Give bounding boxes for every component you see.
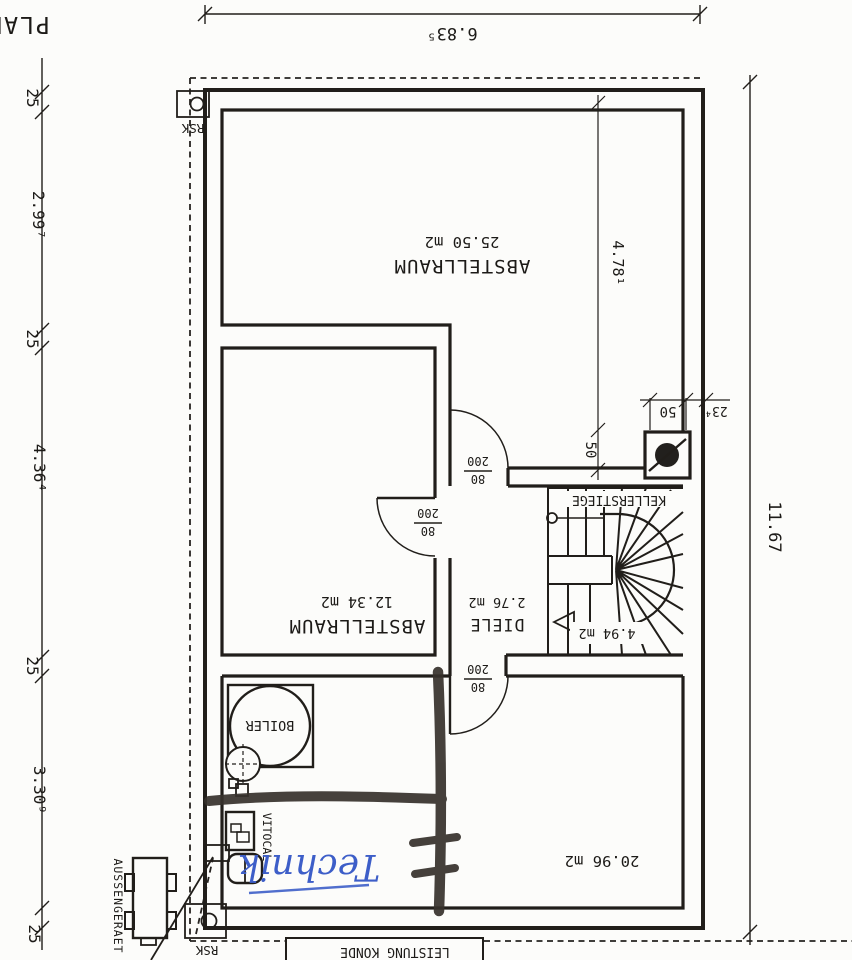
door-label-technik: 80 200 bbox=[464, 662, 492, 694]
outdoor-unit-label: AUSSENGERAET bbox=[111, 858, 125, 953]
room-name: DIELE bbox=[470, 615, 525, 634]
marker-tick-1 bbox=[413, 837, 457, 843]
interior-dim-line bbox=[591, 95, 605, 480]
rsk-top-valve-icon bbox=[191, 98, 204, 111]
bottom-wall-faces bbox=[222, 655, 683, 676]
right-dim-label: 11.67 bbox=[764, 501, 784, 552]
floor-plan-drawing: BOILER VITOCAL AUSSENGERAET RSK RSK bbox=[0, 0, 852, 960]
left-dim-25a: 25 bbox=[23, 88, 42, 107]
door-label-storage-large: 80 200 bbox=[464, 454, 492, 486]
dashed-boundary-path bbox=[190, 78, 852, 941]
left-dim-25b: 25 bbox=[23, 329, 42, 348]
door-width: 80 bbox=[471, 472, 485, 486]
boiler-label: BOILER bbox=[245, 717, 295, 733]
door-width: 80 bbox=[471, 680, 485, 694]
left-dim-436: 4.36⁴ bbox=[30, 444, 49, 492]
door-height: 200 bbox=[417, 506, 439, 520]
vitocal-detail-a bbox=[231, 824, 241, 832]
marker-tick-2 bbox=[415, 868, 455, 874]
door-label-storage-small: 80 200 bbox=[414, 506, 442, 538]
storage-large-boundary bbox=[222, 110, 683, 468]
rsk-bottom-label: RSK bbox=[195, 943, 218, 958]
technik-room-area-label: 20.96 m2 bbox=[565, 852, 640, 870]
room-label-hall: DIELE 2.76 m2 bbox=[469, 594, 526, 634]
bottom-box-label: LEISTUNG KONDE bbox=[340, 944, 450, 959]
outdoor-unit-body bbox=[133, 858, 167, 938]
inner-walls bbox=[222, 110, 683, 908]
floor-plan-scan: BOILER VITOCAL AUSSENGERAET RSK RSK bbox=[0, 0, 852, 960]
door-width: 80 bbox=[421, 524, 435, 538]
stairs-area-label: 4.94 m2 bbox=[579, 625, 636, 641]
vitocal-detail-b bbox=[237, 832, 249, 842]
interior-dim-label: 4.78¹ bbox=[609, 240, 627, 285]
room-label-storage-small: ABSTELLRAUM 12.34 m2 bbox=[289, 593, 426, 637]
marker-vertical-stroke bbox=[438, 672, 441, 911]
top-dim-label: 6.83⁵ bbox=[426, 23, 477, 43]
stairs-label: KELLERSTIEGE bbox=[572, 492, 666, 507]
sheet-title-fragment: PLAN bbox=[0, 11, 50, 37]
left-dim-330: 3.30⁹ bbox=[30, 766, 49, 814]
top-dim-line bbox=[198, 5, 707, 24]
room-name: ABSTELLRAUM bbox=[289, 615, 426, 637]
left-dim-25c: 25 bbox=[23, 656, 42, 675]
handwritten-note: Technik bbox=[238, 846, 380, 887]
chimney-width-label: 50 bbox=[660, 403, 677, 419]
room-area: 2.76 m2 bbox=[469, 594, 526, 610]
left-dim-25d: 25 bbox=[25, 924, 44, 943]
door-height: 200 bbox=[467, 454, 489, 468]
door-height: 200 bbox=[467, 662, 489, 676]
chimney-symbol bbox=[645, 432, 690, 478]
room-name: ABSTELLRAUM bbox=[394, 255, 531, 277]
room-label-storage-large: ABSTELLRAUM 25.50 m2 bbox=[394, 233, 531, 277]
room-area: 25.50 m2 bbox=[425, 233, 500, 251]
stair-tongue bbox=[548, 556, 612, 584]
marker-horizontal-stroke bbox=[209, 796, 442, 801]
outer-wall bbox=[205, 90, 703, 928]
right-dim-line bbox=[743, 75, 757, 945]
boiler-unit bbox=[225, 685, 313, 784]
outdoor-unit-foot-2 bbox=[167, 874, 176, 891]
chimney-depth-label: 50 bbox=[582, 442, 598, 459]
right-offset-label: 23⁴ bbox=[704, 403, 727, 418]
vitocal-box bbox=[226, 812, 254, 850]
rsk-top-label: RSK bbox=[181, 121, 204, 136]
dashed-boundary-lines bbox=[190, 78, 852, 941]
left-dim-299: 2.99⁷ bbox=[29, 191, 48, 239]
room-area: 12.34 m2 bbox=[321, 593, 393, 611]
